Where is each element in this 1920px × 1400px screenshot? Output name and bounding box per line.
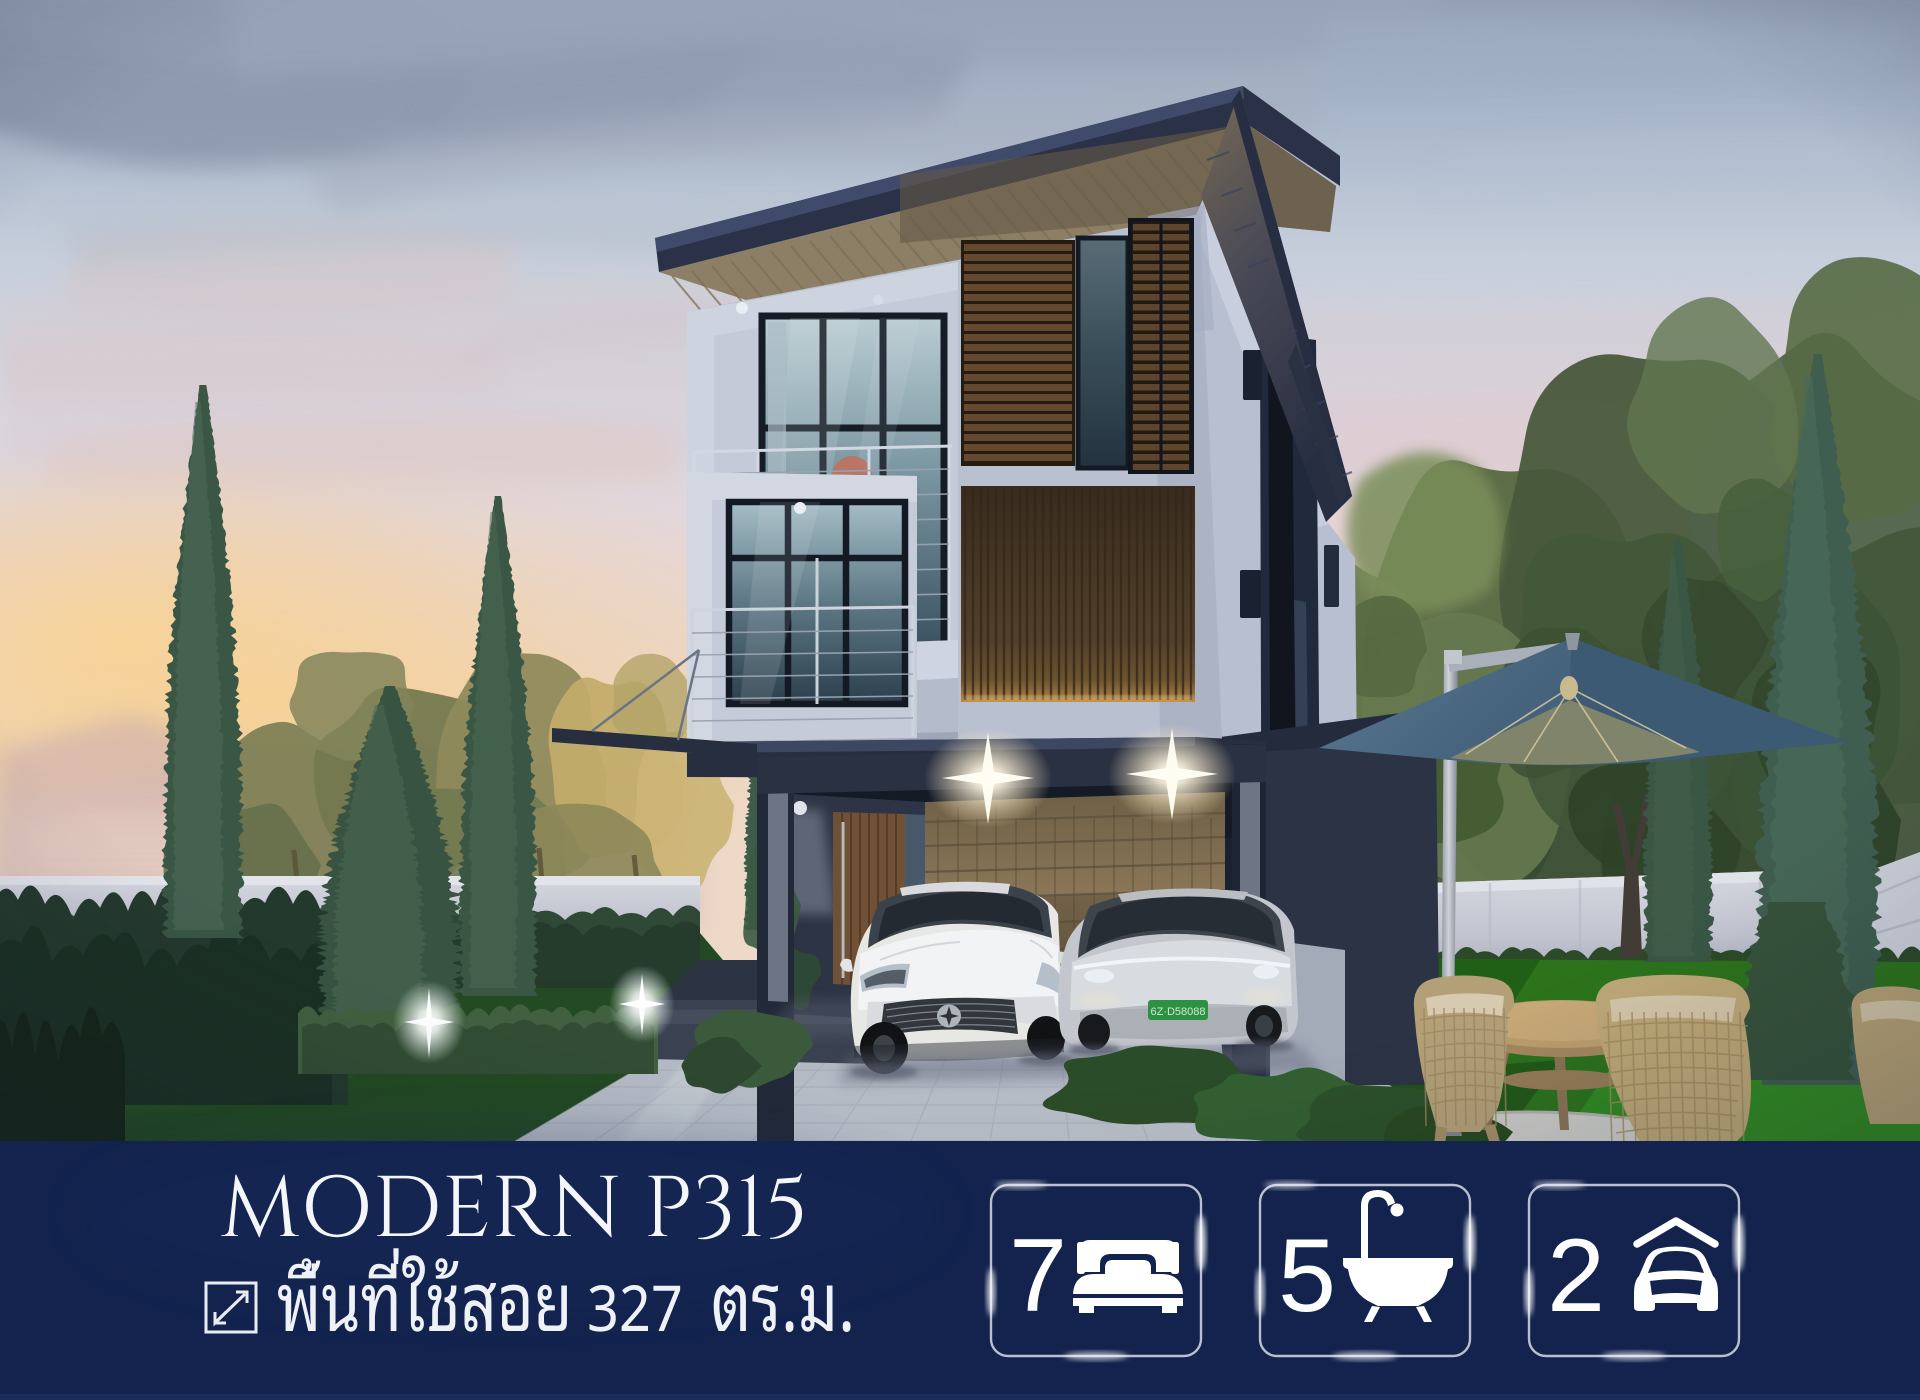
svg-text:7: 7 [1009, 1218, 1067, 1334]
svg-text:5: 5 [1278, 1218, 1336, 1334]
svg-text:2: 2 [1547, 1218, 1605, 1334]
